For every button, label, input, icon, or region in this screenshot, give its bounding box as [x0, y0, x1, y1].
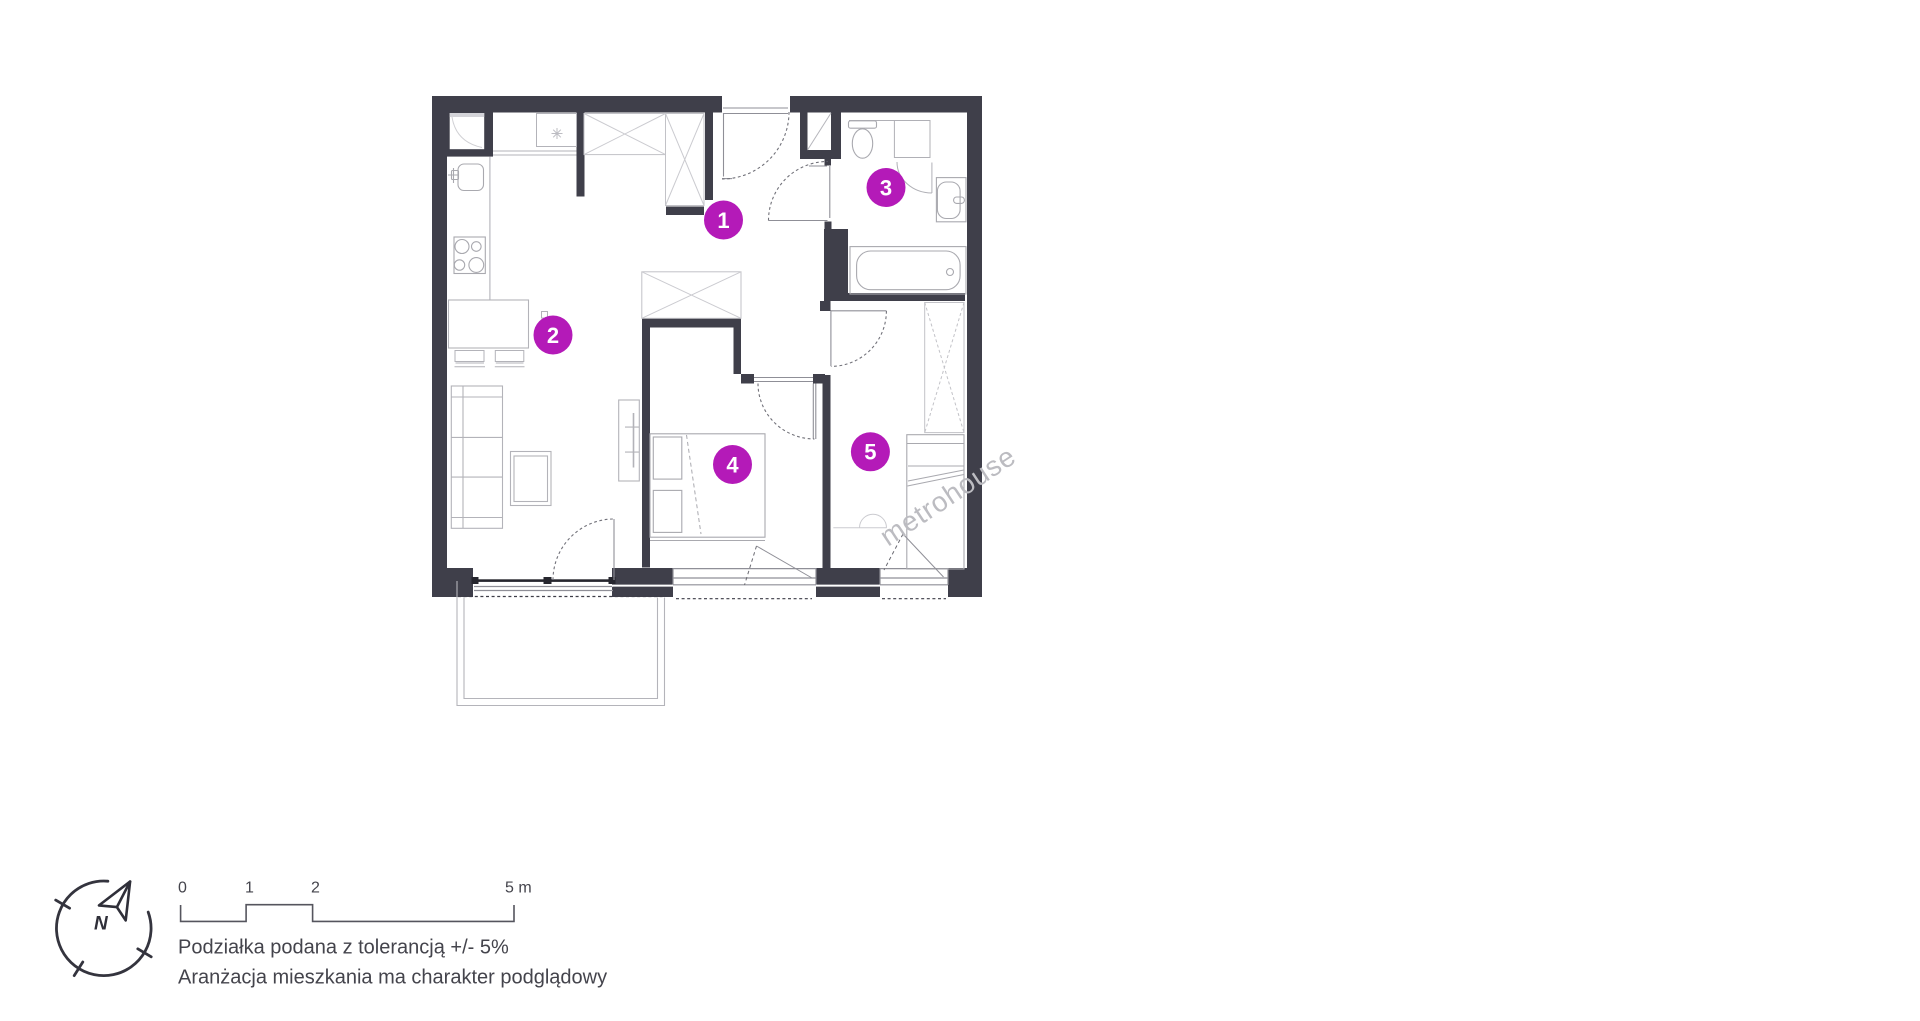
- svg-text:Podziałka podana z tolerancją: Podziałka podana z tolerancją +/- 5%: [178, 937, 509, 959]
- svg-text:N: N: [94, 914, 109, 935]
- svg-text:3: 3: [880, 175, 892, 200]
- svg-text:4: 4: [726, 452, 739, 477]
- svg-text:1: 1: [717, 208, 729, 233]
- svg-text:5: 5: [864, 440, 876, 465]
- svg-text:0: 0: [178, 880, 187, 897]
- svg-text:2: 2: [311, 880, 320, 897]
- svg-text:Aranżacja mieszkania ma charak: Aranżacja mieszkania ma charakter podglą…: [178, 967, 607, 989]
- svg-text:2: 2: [547, 323, 559, 348]
- svg-text:1: 1: [245, 880, 254, 897]
- svg-text:5 m: 5 m: [505, 880, 532, 897]
